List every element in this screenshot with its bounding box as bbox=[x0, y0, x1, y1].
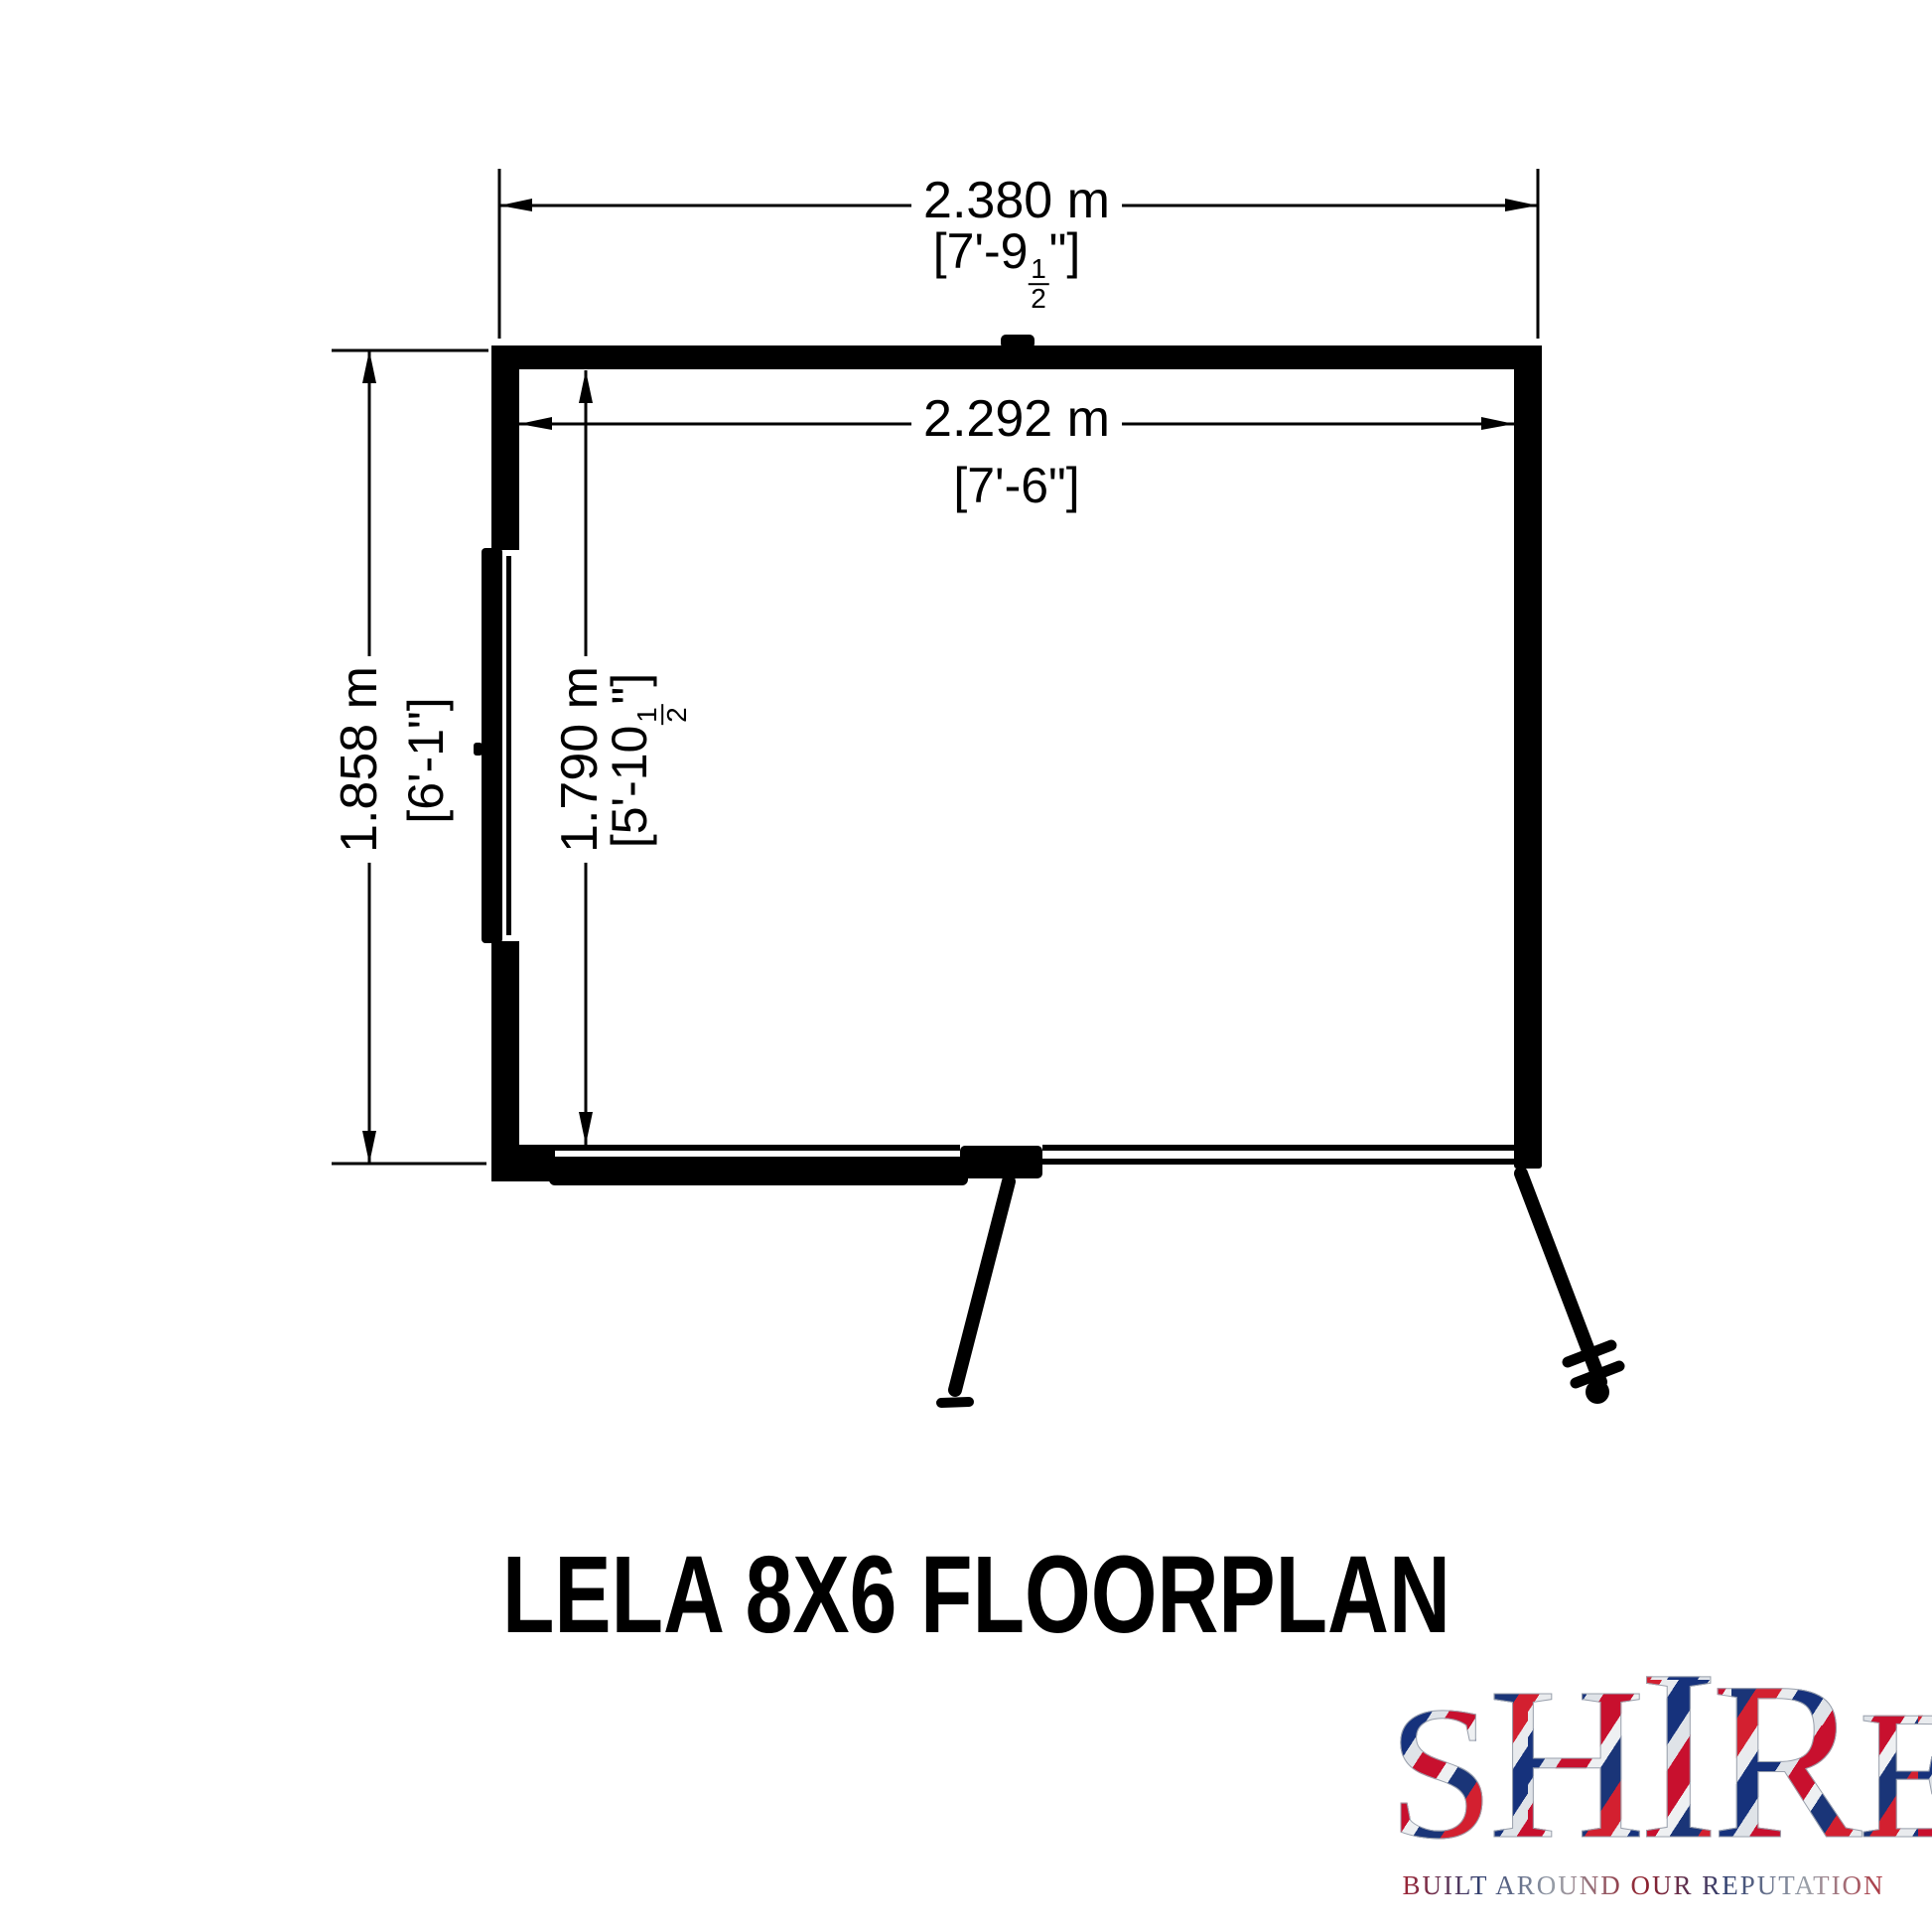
imperial-fraction: 12 bbox=[633, 704, 692, 725]
fraction-numerator: 1 bbox=[1028, 255, 1048, 286]
label-inner-width-metric: 2.292 m bbox=[911, 391, 1122, 447]
imperial-prefix: [7'-9 bbox=[933, 223, 1029, 279]
imperial-suffix: "] bbox=[1049, 223, 1081, 279]
door-center-post bbox=[960, 1146, 1042, 1178]
arrow-outer-width-right bbox=[1505, 199, 1538, 211]
door-threshold-line-outer bbox=[1042, 1145, 1514, 1151]
fraction-denominator: 2 bbox=[1028, 285, 1048, 314]
fraction-numerator: 1 bbox=[633, 704, 664, 725]
label-outer-width-metric: 2.380 m bbox=[911, 173, 1122, 228]
label-inner-width-imperial: [7'-6"] bbox=[941, 459, 1091, 512]
window-glass-line bbox=[506, 556, 511, 935]
roof-apex-marker bbox=[1001, 335, 1035, 348]
logo-letter: S bbox=[1388, 1667, 1494, 1878]
arrow-outer-depth-bottom bbox=[362, 1131, 376, 1164]
door-leaf-left bbox=[955, 1181, 1009, 1390]
wall-left-upper bbox=[491, 345, 519, 550]
door-threshold-line-inner bbox=[1042, 1159, 1514, 1165]
imperial-prefix: [5'-10 bbox=[602, 726, 657, 849]
window-mid-tick bbox=[474, 743, 483, 756]
arrow-inner-depth-bottom bbox=[579, 1112, 593, 1145]
imperial-prefix: [7'-6"] bbox=[953, 458, 1079, 513]
label-outer-width-imperial: [7'-912"] bbox=[921, 224, 1093, 316]
label-inner-depth-imperial: [5'-1012"] bbox=[599, 663, 698, 858]
logo-letter: R bbox=[1712, 1636, 1863, 1886]
wall-top bbox=[491, 345, 1542, 369]
wall-bottom-inner-line bbox=[519, 1145, 960, 1151]
logo-letter: E bbox=[1859, 1673, 1932, 1877]
label-outer-depth-imperial: [6'-1"] bbox=[395, 687, 457, 833]
fraction-denominator: 2 bbox=[663, 704, 692, 725]
door-leaf-left-foot bbox=[941, 1402, 969, 1403]
label-outer-depth-metric: 1.858 m bbox=[328, 656, 391, 863]
floorplan-page: 2.380 m [7'-912"] 2.292 m [7'-6"] 1.858 … bbox=[0, 0, 1932, 1932]
page-title: LELA 8X6 FLOORPLAN bbox=[502, 1541, 1432, 1650]
wall-bottom-band bbox=[552, 1157, 960, 1174]
imperial-prefix: [6'-1"] bbox=[398, 697, 454, 823]
arrow-inner-width-right bbox=[1481, 417, 1514, 430]
arrow-inner-depth-top bbox=[579, 370, 593, 403]
arrow-outer-depth-top bbox=[362, 350, 376, 383]
wall-left-lower bbox=[491, 941, 519, 1176]
logo-letter: H bbox=[1488, 1642, 1646, 1884]
logo-tagline: BUILT AROUND OUR REPUTATION bbox=[1388, 1870, 1899, 1901]
wall-right bbox=[1514, 345, 1542, 1169]
arrow-outer-width-left bbox=[499, 199, 532, 211]
imperial-fraction: 12 bbox=[1028, 255, 1048, 314]
logo-letter: I bbox=[1638, 1620, 1720, 1890]
wall-bottom-sill-lip bbox=[549, 1173, 968, 1185]
shire-logo: SHIRE bbox=[1388, 1633, 1899, 1877]
window-sill bbox=[482, 548, 502, 943]
arrow-inner-width-left bbox=[519, 417, 552, 430]
imperial-suffix: "] bbox=[602, 673, 657, 705]
door-right-handle-knob bbox=[1586, 1380, 1609, 1404]
